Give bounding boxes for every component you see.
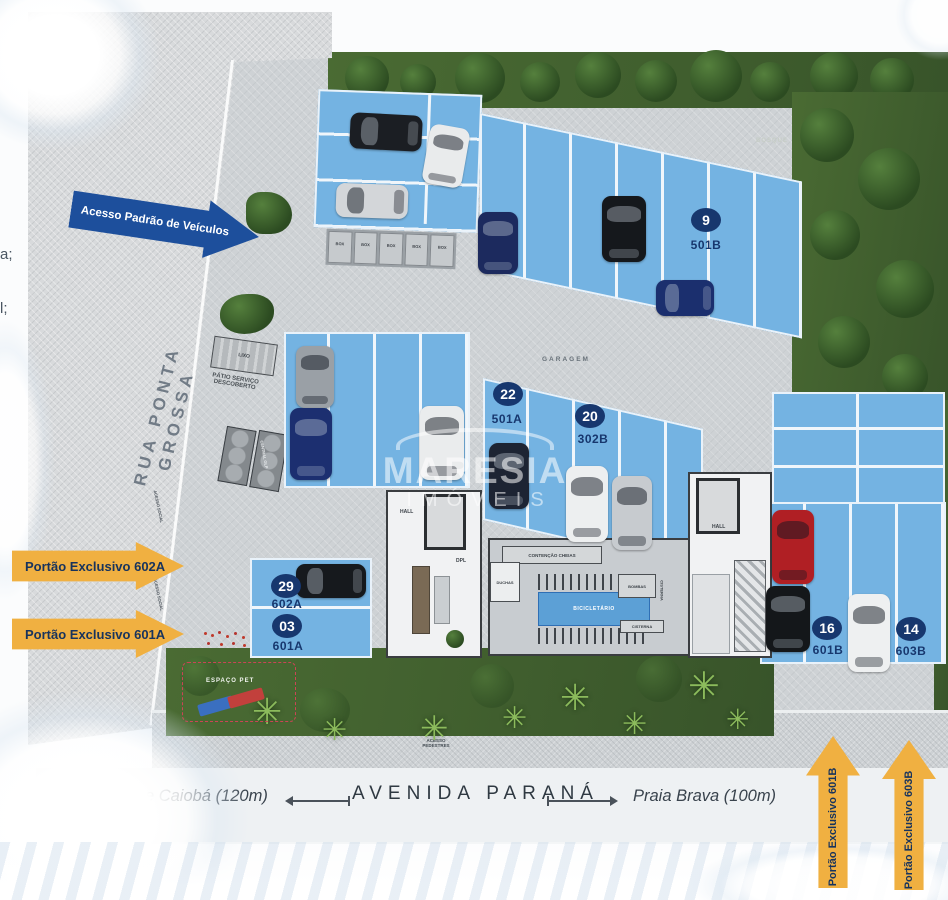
- storage-box: BOX: [430, 234, 455, 267]
- hall-right-label: HALL: [712, 524, 725, 530]
- flower-bed: [204, 632, 207, 635]
- car-silver: [612, 476, 652, 550]
- car-navy: [290, 408, 332, 480]
- tree: [690, 50, 742, 102]
- counter: [692, 574, 730, 654]
- palm-tree: ✳: [560, 680, 590, 716]
- stall-number: 22: [493, 382, 523, 406]
- storage-box: BOX: [404, 233, 429, 266]
- storage-box: BOX: [379, 233, 404, 266]
- palm-tree: ✳: [622, 710, 647, 740]
- palm-tree: ✳: [322, 716, 347, 746]
- tree: [810, 210, 860, 260]
- watermark-sub: IMÓVEIS: [380, 489, 570, 512]
- kitchen-island: [434, 576, 450, 624]
- car-navy: [478, 212, 518, 274]
- car-white: [848, 594, 890, 672]
- storage-box: BOX: [353, 232, 378, 265]
- palm-tree: ✳: [688, 668, 720, 706]
- wash-top-left: [0, 0, 160, 150]
- site-plan: BOSQUE RUA PONTA GROSSA ACESSO SOCIAL AC…: [0, 0, 948, 900]
- stall-divider: [252, 606, 370, 609]
- stall-unit: 601A: [273, 639, 304, 653]
- bombas-room: BOMBAS: [618, 574, 656, 598]
- gate-601a-label: Portão Exclusivo 601A: [25, 627, 165, 642]
- stall-unit: 302B: [578, 432, 609, 446]
- car-gray: [296, 346, 334, 408]
- cropped-text-fragment: l;: [0, 300, 8, 317]
- dpl-label: DPL: [456, 558, 466, 564]
- stairs: [734, 560, 766, 652]
- wash-top-right: [895, 0, 948, 60]
- stall-unit: 602A: [272, 597, 303, 611]
- car-black: [766, 586, 810, 652]
- tree: [818, 316, 870, 368]
- stall-number: 20: [575, 404, 605, 428]
- pet-area-label: ESPAÇO PET: [206, 678, 254, 684]
- distance-arrow-right: [547, 800, 615, 802]
- car-red: [772, 510, 814, 584]
- stall-divider: [856, 394, 859, 504]
- stall-number: 29: [271, 574, 301, 598]
- hedge: [246, 192, 292, 234]
- storage-box-row: BOX BOX BOX BOX BOX: [325, 229, 456, 270]
- garagem-label: GARAGEM: [542, 356, 590, 363]
- gate-602a-label: Portão Exclusivo 602A: [25, 559, 165, 574]
- kitchen-counter: [412, 566, 430, 634]
- stall-number: 14: [896, 617, 926, 641]
- storage-box: BOX: [327, 231, 352, 264]
- palm-tree: ✳: [502, 704, 527, 734]
- tree: [800, 108, 854, 162]
- watermark-swoosh: [396, 428, 554, 450]
- plant: [446, 630, 464, 648]
- tree: [520, 62, 560, 102]
- watermark: MARESIA IMÓVEIS: [380, 428, 570, 512]
- stall-unit: 603B: [896, 644, 927, 658]
- tree: [858, 148, 920, 210]
- gate-603b-label: Portão Exclusivo 603B: [903, 771, 915, 890]
- car-navy: [656, 280, 714, 316]
- tree: [750, 62, 790, 102]
- duchas-room: DUCHAS: [490, 562, 520, 602]
- tree: [876, 260, 934, 318]
- stall-number: 16: [812, 616, 842, 640]
- car-black: [602, 196, 646, 262]
- bosque-label: BOSQUE: [756, 138, 788, 144]
- palm-tree: ✳: [420, 712, 449, 746]
- watermark-brand: MARESIA: [380, 452, 570, 489]
- distance-arrow-left: [288, 800, 350, 802]
- stall-unit: 601B: [813, 643, 844, 657]
- palm-tree: ✳: [726, 706, 749, 734]
- cropped-text-fragment: a;: [0, 246, 13, 263]
- stall-number: 03: [272, 614, 302, 638]
- stall-number: 9: [691, 208, 721, 232]
- car-black: [296, 564, 366, 598]
- gate-601b-label: Portão Exclusivo 601B: [827, 768, 839, 887]
- shrub: [636, 656, 682, 702]
- stall-unit: 501B: [691, 238, 722, 252]
- car-white: [566, 466, 608, 542]
- car-silver: [335, 183, 408, 219]
- tree: [635, 60, 677, 102]
- stall-unit: 501A: [492, 412, 523, 426]
- cisterna-room: CISTERNA: [620, 620, 664, 633]
- lixo-label: LIXO: [238, 352, 250, 360]
- car-black: [349, 112, 423, 152]
- tree: [575, 52, 621, 98]
- poi-right-label: Praia Brava (100m): [633, 787, 776, 806]
- cisterna-label: CISTERNA: [660, 580, 665, 600]
